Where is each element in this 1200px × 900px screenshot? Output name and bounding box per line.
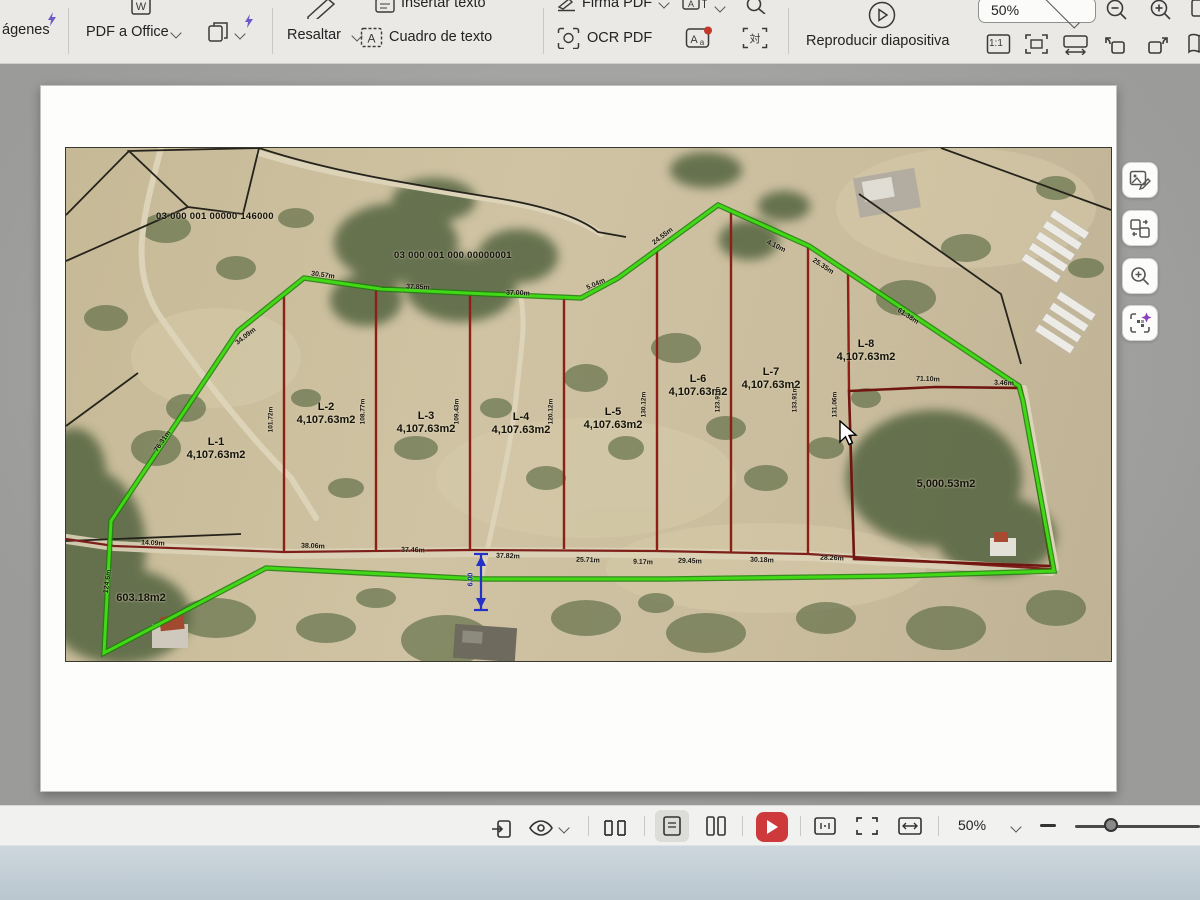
separator (742, 816, 743, 836)
separator (800, 816, 801, 836)
separator (938, 816, 939, 836)
fit-width-icon (1062, 34, 1089, 55)
sign-pdf-label: Firma PDF (582, 0, 652, 11)
measurement-label: 29.45m (678, 558, 702, 566)
svg-text:対: 対 (750, 32, 761, 46)
play-icon (766, 820, 778, 834)
measurement-label: 133.91m (791, 387, 798, 413)
actual-size-button[interactable]: 1:1 (986, 33, 1011, 60)
measurement-label: 101.72m (267, 407, 274, 433)
taskbar: ♪ f (0, 845, 1200, 900)
parcel-area: 4,107.63m2 (492, 424, 551, 436)
satellite-map[interactable]: 03 000 001 00000 146000 03 000 001 000 0… (66, 148, 1111, 661)
images-button[interactable]: ágenes (2, 22, 50, 38)
highlighter-icon (302, 0, 338, 19)
facing-pages-icon (704, 815, 728, 837)
ai-extract-tool-button[interactable] (1122, 305, 1158, 341)
ribbon-toolbar: ágenes W PDF a Office Resaltar Insertar … (0, 0, 1200, 64)
char-frame-icon: 対 (742, 27, 768, 49)
chevron-down-icon (658, 0, 669, 9)
parcel-name: L-2 (318, 401, 335, 413)
ocr-pdf-label: OCR PDF (587, 30, 652, 46)
zoom-slider-knob[interactable] (1104, 818, 1118, 832)
parcel-name: L-7 (763, 366, 780, 378)
images-label: ágenes (2, 22, 50, 38)
rotate-right-button[interactable] (1144, 34, 1171, 61)
zoom-out-icon (1104, 0, 1130, 20)
zoom-out-button[interactable] (1104, 0, 1130, 25)
parcel-label: L-14,107.63m2 (171, 436, 261, 461)
measurement-label: 71.10m (916, 376, 940, 384)
parcel-name: L-6 (690, 373, 707, 385)
chevron-down-icon (558, 822, 569, 833)
parcel-area: 603.18m2 (116, 592, 166, 604)
rotate-left-icon (1102, 34, 1129, 56)
highlight-label: Resaltar (287, 27, 341, 43)
zoom-in-icon (1148, 0, 1174, 20)
parcel-label: L-24,107.63m2 (281, 401, 371, 426)
measurement-label: 25.71m (576, 557, 600, 565)
copy-pages-icon (206, 20, 230, 44)
translate-icon: A (682, 0, 708, 12)
parcel-label: 5,000.53m2 (896, 478, 996, 491)
zoom-level-status[interactable]: 50% (958, 817, 986, 833)
pdf-editor-window: ágenes W PDF a Office Resaltar Insertar … (0, 0, 1200, 900)
document-area: 03 000 001 00000 146000 03 000 001 000 0… (0, 64, 1200, 805)
svg-text:W: W (136, 1, 147, 13)
play-button[interactable] (756, 812, 788, 842)
fit-width-status-button[interactable] (897, 816, 923, 841)
separator (543, 8, 544, 54)
separator (788, 8, 789, 54)
svg-text:A: A (690, 34, 698, 46)
highlight-button[interactable]: Resaltar (287, 27, 341, 43)
single-page-icon (662, 815, 682, 837)
parcel-area: 4,107.63m2 (837, 351, 896, 363)
chevron-down-icon (714, 1, 725, 12)
insert-text-label: Insertar texto (401, 0, 486, 11)
parcel-area: 4,107.63m2 (397, 423, 456, 435)
export-icon (490, 819, 512, 839)
measurement-label: 14.09m (141, 539, 165, 547)
rotate-right-icon (1144, 34, 1171, 56)
export-button[interactable] (490, 819, 512, 844)
magnifier-plus-icon (1129, 265, 1151, 287)
text-box-label: Cuadro de texto (389, 29, 492, 45)
two-column-icon (602, 818, 628, 838)
zoom-in-button[interactable] (1148, 0, 1174, 25)
parcel-label: 603.18m2 (101, 592, 181, 605)
ai-bolt-icon (46, 12, 58, 26)
measurement-label: 131.06m (831, 392, 838, 418)
pdf-page[interactable]: 03 000 001 00000 146000 03 000 001 000 0… (40, 85, 1117, 792)
fit-width-icon (897, 816, 923, 836)
word-doc-icon: W (128, 0, 154, 16)
search-button[interactable] (744, 0, 768, 19)
pdf-to-office-label: PDF a Office (86, 24, 169, 40)
zoom-image-tool-button[interactable] (1122, 258, 1158, 294)
chevron-down-icon (170, 27, 181, 38)
rotate-left-button[interactable] (1102, 34, 1129, 61)
translate-book-icon: Aa (685, 26, 713, 51)
zoom-slider-track[interactable] (1075, 825, 1200, 828)
measurement-label: 120.12m (547, 399, 554, 425)
measurement-label: 37.46m (401, 547, 425, 555)
measurement-label: 9.17m (633, 559, 653, 567)
svg-text:A: A (367, 32, 375, 46)
batch-convert-button[interactable] (206, 20, 230, 49)
separator (588, 816, 589, 836)
measurement-label: 37.82m (496, 553, 520, 561)
separator (272, 8, 273, 54)
cadastral-label: 03 000 001 00000 146000 (156, 211, 274, 222)
actual-size-status-button[interactable] (813, 816, 837, 841)
zoom-level-value: 50% (991, 2, 1037, 18)
measurement-label: 3.46m (994, 380, 1014, 388)
parcel-name: L-4 (513, 411, 530, 423)
parcel-area: 5,000.53m2 (917, 478, 976, 490)
blue-dimension-label: 6.00 (467, 573, 474, 587)
measurement-label: 130.12m (640, 392, 647, 418)
compare-text-button[interactable]: 対 (742, 27, 768, 54)
svg-text:a: a (700, 38, 705, 47)
search-icon (744, 0, 768, 14)
text-box-icon: A (360, 27, 383, 48)
signature-icon (556, 0, 577, 12)
cadastral-label: 03 000 001 000 00000001 (394, 250, 512, 261)
fit-screen-status-button[interactable] (855, 816, 879, 841)
parcel-area: 4,107.63m2 (297, 414, 356, 426)
fit-page-button[interactable] (1024, 33, 1049, 60)
parcel-area: 4,107.63m2 (187, 449, 246, 461)
actual-size-icon (813, 816, 837, 836)
parcel-name: L-3 (418, 410, 435, 422)
separator (68, 8, 69, 54)
play-slideshow-label: Reproducir diapositiva (806, 33, 949, 49)
actual-size-label: 1:1 (989, 38, 1003, 49)
play-circle-icon (868, 1, 896, 29)
measurement-label: 37.85m (406, 283, 430, 291)
measurement-label: 30.18m (750, 557, 774, 565)
parcel-name: L-1 (208, 436, 225, 448)
eye-icon (528, 819, 554, 837)
parcel-area: 4,107.63m2 (584, 419, 643, 431)
chevron-down-icon (1010, 821, 1021, 832)
translate-button[interactable]: A (682, 0, 708, 17)
book-view-button[interactable] (1186, 33, 1200, 57)
book-view-icon (1186, 33, 1200, 55)
two-column-view-button[interactable] (602, 818, 628, 843)
edit-image-icon (1129, 169, 1151, 191)
zoom-level-select[interactable]: 50% (978, 0, 1096, 23)
fit-screen-icon (855, 816, 879, 836)
chevron-down-icon (1040, 0, 1079, 28)
single-page-view-button[interactable] (662, 815, 682, 842)
measurement-label: 37.00m (506, 290, 530, 298)
parcel-name: L-5 (605, 406, 622, 418)
ocr-scan-icon (557, 27, 580, 49)
insert-text-icon (375, 0, 395, 13)
ai-bolt-icon (243, 14, 255, 28)
pdf-to-office-button[interactable]: PDF a Office (86, 24, 169, 40)
measurement-label: 108.77m (359, 399, 366, 425)
translate-doc-button[interactable]: Aa (685, 26, 713, 56)
replace-icon (1129, 217, 1151, 239)
status-bar: 50% (0, 805, 1200, 846)
replace-image-tool-button[interactable] (1122, 210, 1158, 246)
chevron-down-icon (234, 28, 245, 39)
fit-page-icon (1024, 33, 1049, 55)
measurement-label: 28.26m (820, 555, 844, 563)
parcel-name: L-8 (858, 338, 875, 350)
facing-pages-view-button[interactable] (704, 815, 728, 842)
map-graphics (66, 148, 1111, 661)
separator (644, 816, 645, 836)
edit-image-tool-button[interactable] (1122, 162, 1158, 198)
measurement-label: 38.06m (301, 543, 325, 551)
play-slideshow-button[interactable]: Reproducir diapositiva (806, 0, 976, 56)
parcel-label: L-84,107.63m2 (821, 338, 911, 363)
zoom-level-value: 50% (958, 817, 986, 833)
svg-text:A: A (688, 0, 694, 9)
fit-width-button[interactable] (1062, 34, 1089, 60)
parcel-label: L-74,107.63m2 (726, 366, 816, 391)
mouse-cursor (838, 420, 860, 450)
zoom-out-slider-button[interactable] (1040, 824, 1056, 827)
clipped-toolbar-button[interactable] (1190, 0, 1200, 20)
view-mode-button[interactable] (528, 819, 554, 842)
measurement-label: 123.91m (714, 387, 721, 413)
measurement-label: 109.43m (453, 399, 460, 425)
ai-crop-sparkle-icon (1128, 311, 1152, 335)
